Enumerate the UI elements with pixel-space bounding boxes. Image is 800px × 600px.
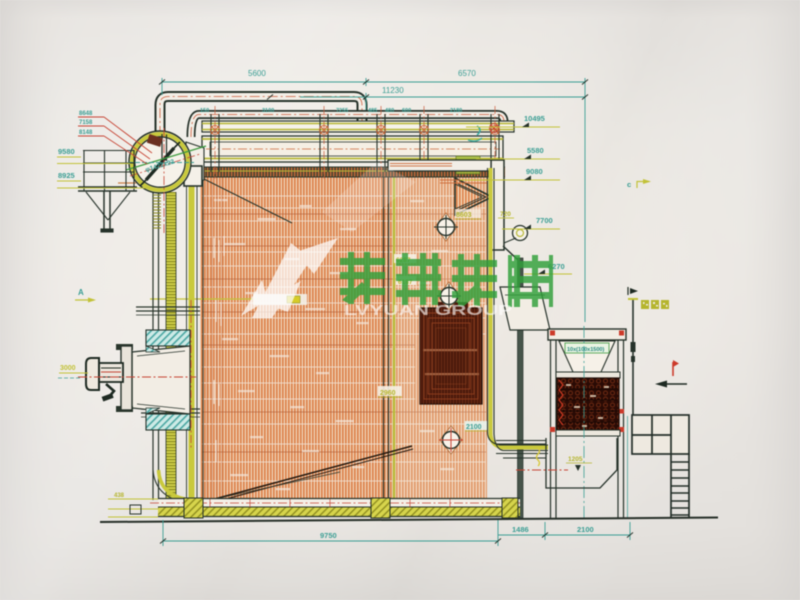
svg-text:480: 480 (385, 108, 394, 114)
svg-text:9580: 9580 (58, 147, 75, 156)
svg-text:8648: 8648 (79, 111, 93, 117)
svg-text:150: 150 (200, 108, 209, 114)
svg-text:10495: 10495 (524, 114, 545, 123)
svg-text:485: 485 (368, 108, 377, 114)
svg-text:9080: 9080 (526, 167, 543, 176)
svg-text:2100: 2100 (577, 525, 594, 534)
svg-text:7700: 7700 (536, 216, 553, 225)
svg-text:1486: 1486 (512, 525, 529, 534)
svg-text:438: 438 (114, 493, 125, 499)
svg-text:LVYUAN GROUP: LVYUAN GROUP (344, 302, 512, 319)
svg-text:8925: 8925 (58, 171, 75, 180)
svg-text:3000: 3000 (60, 365, 76, 372)
svg-text:2100: 2100 (466, 424, 482, 431)
svg-text:5600: 5600 (248, 69, 266, 78)
svg-text:3100: 3100 (262, 108, 274, 114)
svg-text:600: 600 (402, 108, 411, 114)
svg-text:720: 720 (500, 211, 511, 218)
svg-text:10x(100x1500): 10x(100x1500) (567, 347, 604, 353)
svg-text:7255: 7255 (336, 108, 348, 114)
svg-text:9750: 9750 (320, 531, 337, 540)
svg-text:7158: 7158 (79, 120, 93, 126)
svg-text:8603: 8603 (456, 212, 472, 219)
svg-text:A: A (78, 288, 84, 297)
svg-text:2180: 2180 (450, 108, 462, 114)
svg-text:1205: 1205 (568, 456, 583, 463)
svg-text:11230: 11230 (382, 86, 404, 95)
svg-text:6570: 6570 (458, 69, 476, 78)
svg-text:2960: 2960 (380, 390, 396, 397)
svg-text:5580: 5580 (527, 146, 544, 155)
svg-text:c: c (627, 180, 631, 189)
svg-text:8148: 8148 (79, 130, 93, 136)
